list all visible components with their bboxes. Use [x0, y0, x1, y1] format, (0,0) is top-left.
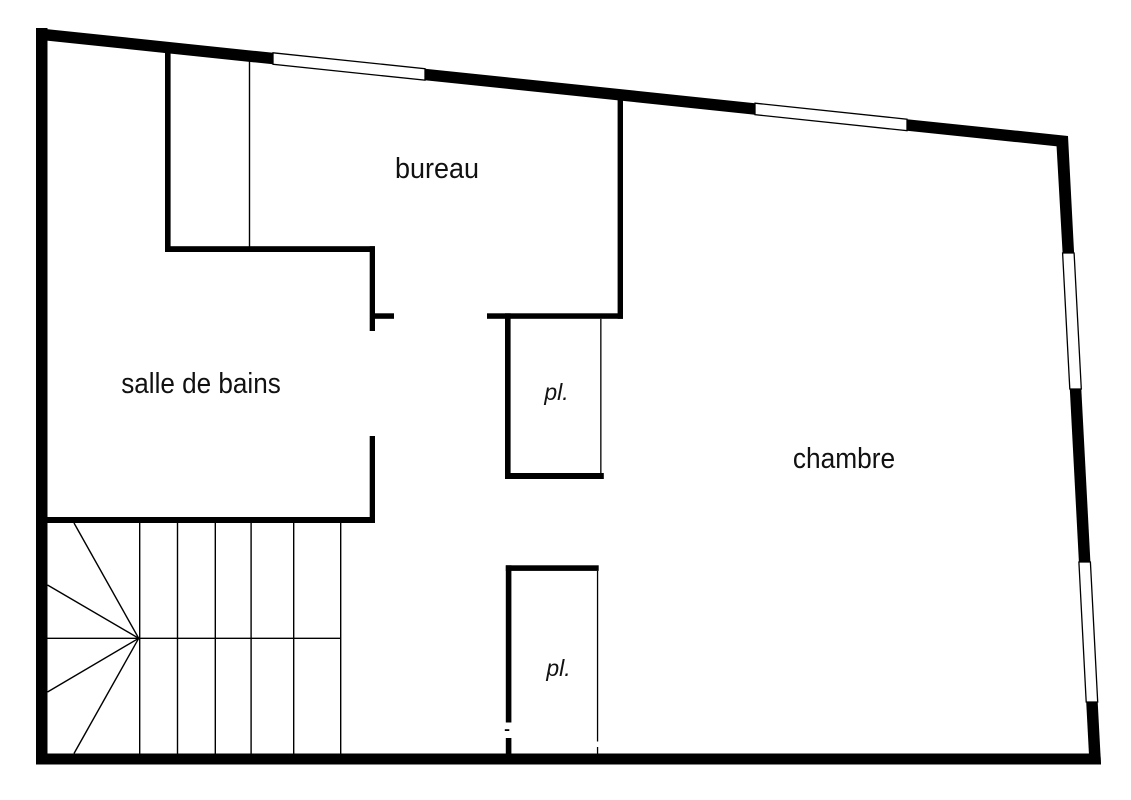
svg-text:salle de bains: salle de bains: [121, 368, 281, 400]
svg-text:pl.: pl.: [545, 655, 570, 681]
svg-text:chambre: chambre: [793, 443, 895, 475]
svg-text:pl.: pl.: [543, 379, 568, 405]
svg-text:bureau: bureau: [395, 153, 479, 185]
